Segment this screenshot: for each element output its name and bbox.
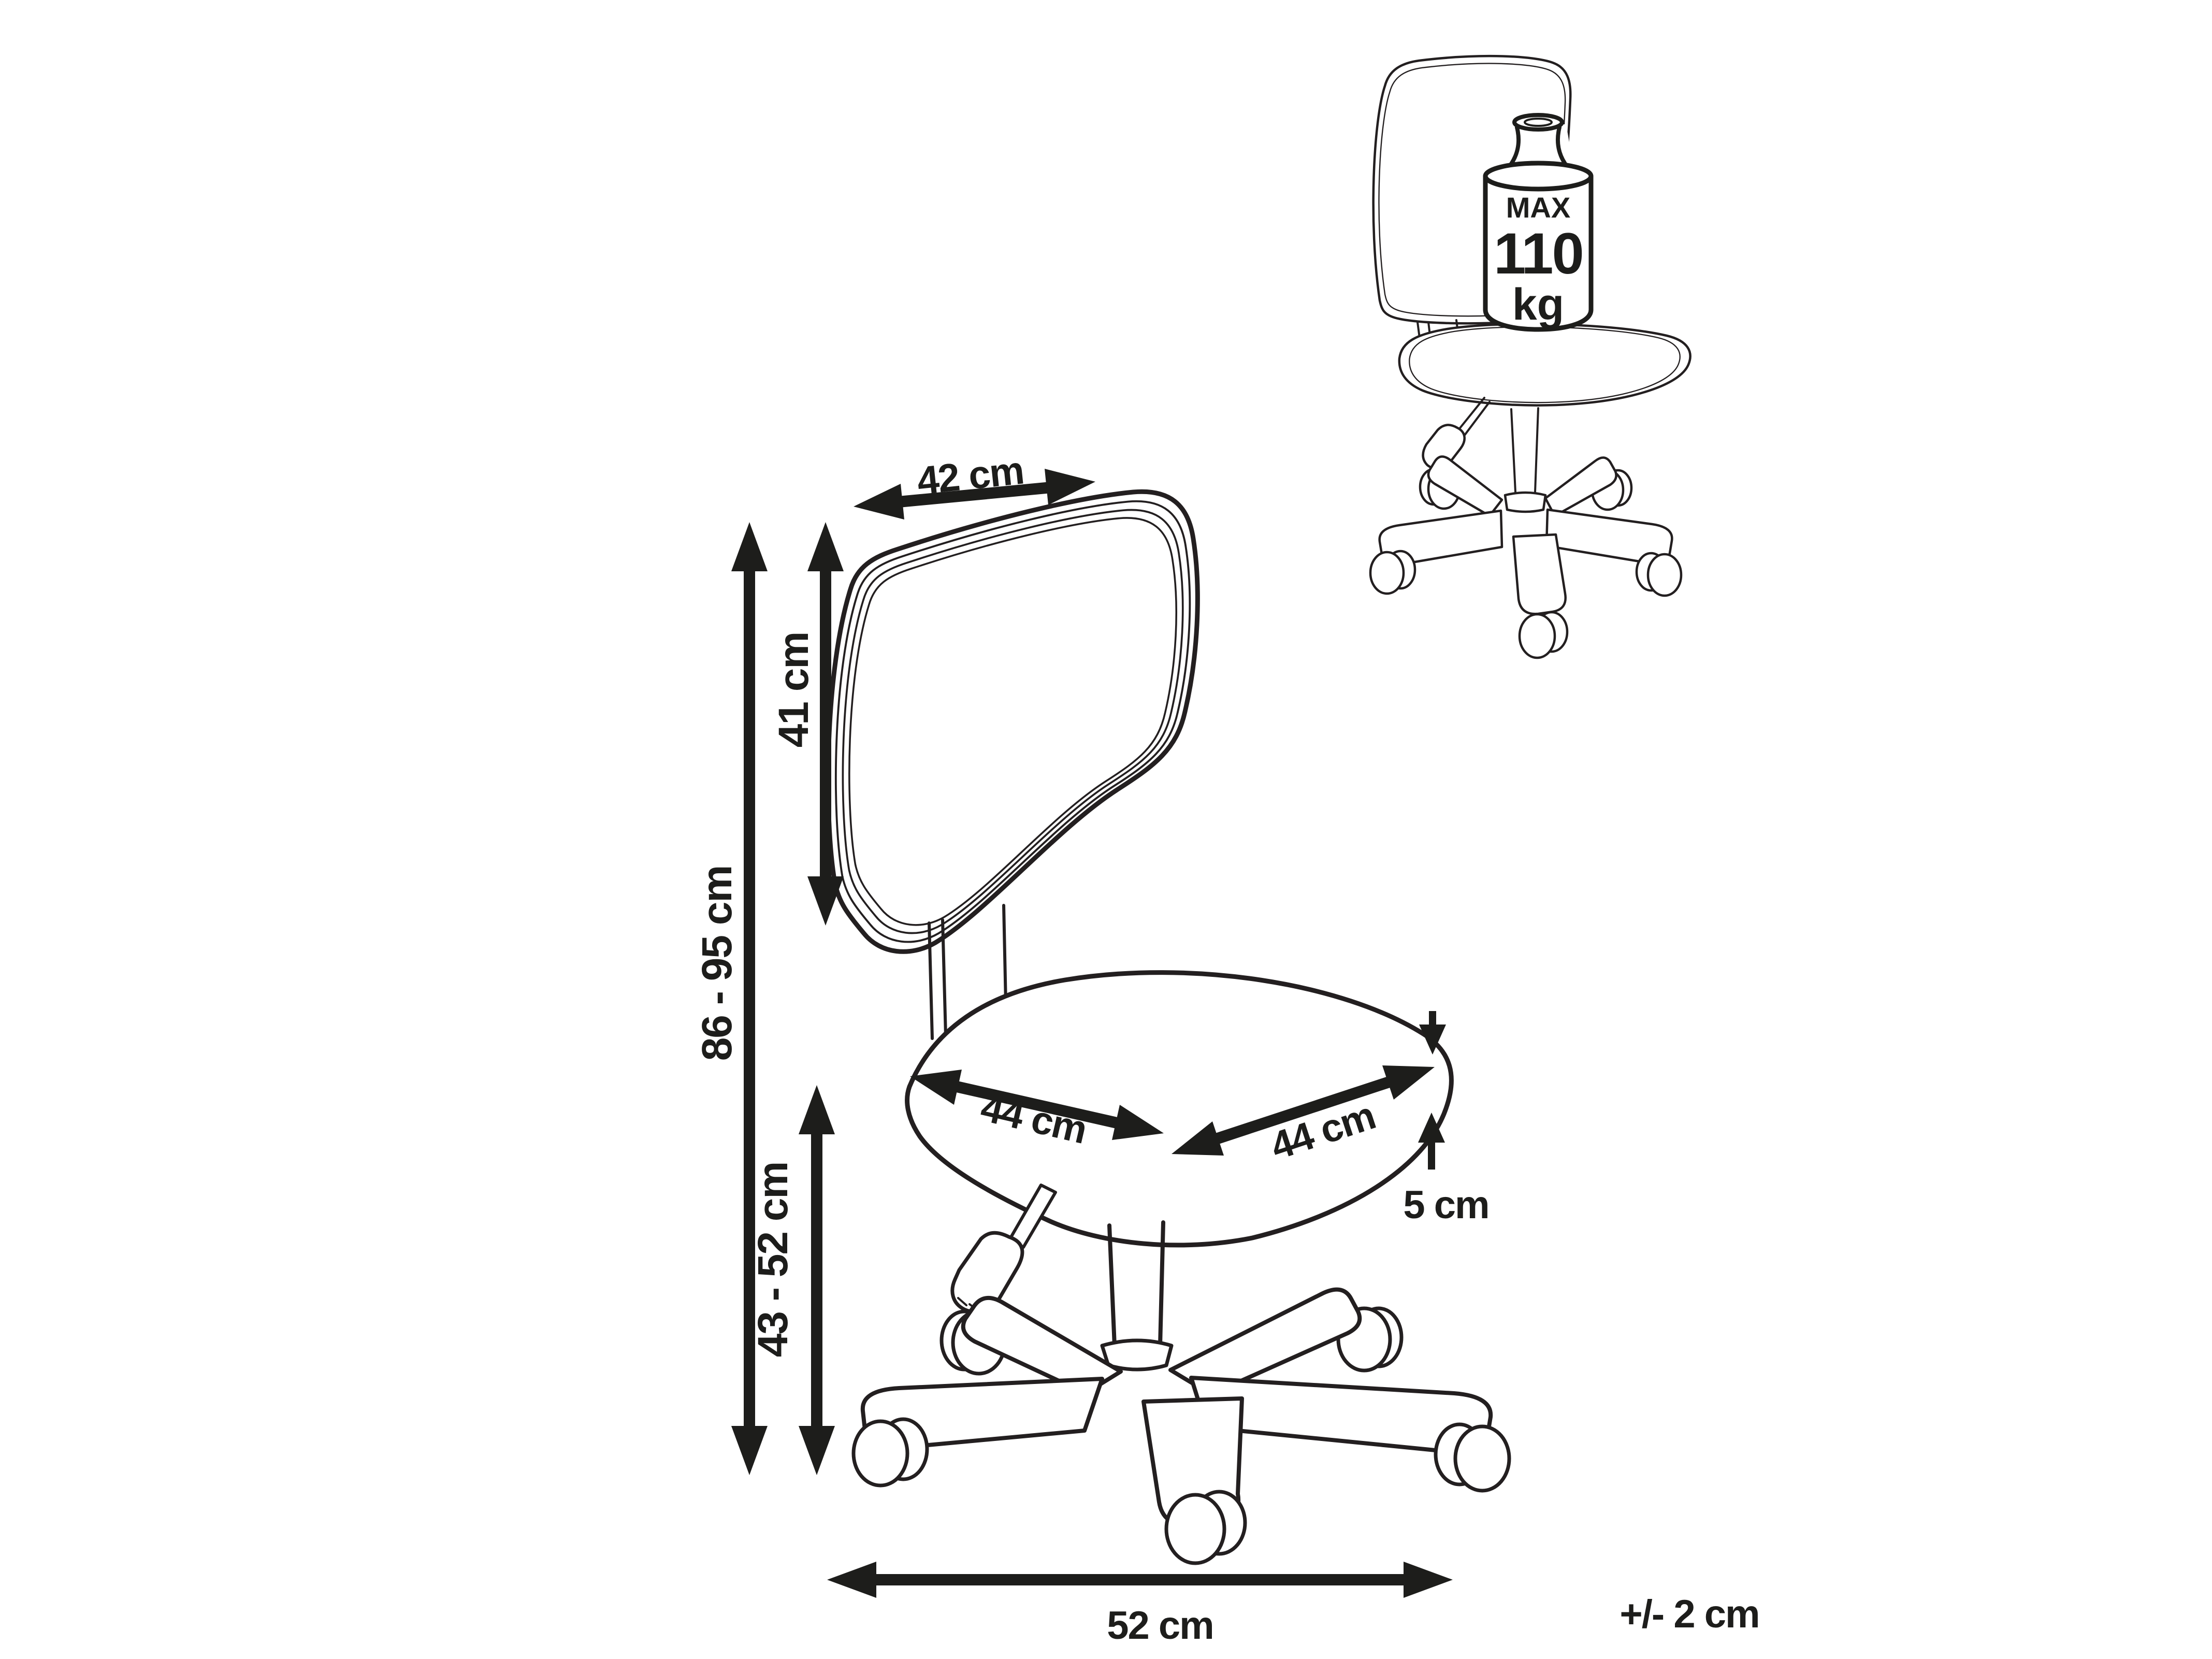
- small-hub: [1505, 493, 1545, 512]
- weight-label-110: 110: [1494, 221, 1583, 286]
- dim-seat-thickness-label: 5 cm: [1403, 1183, 1488, 1227]
- small-column: [1511, 408, 1538, 492]
- small-chair-drawing: MAX 110 kg: [1370, 56, 1690, 658]
- dim-seat-height: 43 - 52 cm: [749, 1085, 835, 1475]
- caster-right: [1436, 1424, 1509, 1491]
- dim-seat-height-label: 43 - 52 cm: [749, 1162, 797, 1358]
- dim-backrest-height-label: 41 cm: [770, 632, 817, 748]
- small-gas-lever: [1423, 398, 1490, 468]
- caster-left: [854, 1419, 927, 1485]
- gas-lift-lever: [952, 1185, 1056, 1312]
- base: [854, 1290, 1509, 1563]
- dim-base-width: 52 cm: [827, 1562, 1453, 1648]
- weight-label-kg: kg: [1512, 280, 1564, 329]
- small-caster-right: [1637, 553, 1681, 596]
- tolerance-note: +/- 2 cm: [1620, 1592, 1759, 1636]
- main-chair-drawing: [828, 492, 1509, 1563]
- small-arm-front: [1513, 535, 1566, 614]
- caster-front: [1166, 1492, 1245, 1563]
- small-caster-left: [1370, 551, 1415, 594]
- weight-label-max: MAX: [1506, 191, 1570, 224]
- dim-total-height-label: 86 - 95 cm: [693, 866, 741, 1061]
- dim-base-width-label: 52 cm: [1107, 1604, 1213, 1648]
- small-caster-front: [1520, 612, 1567, 658]
- dimension-diagram: MAX 110 kg 42 cm 41 cm 86 - 95 cm: [0, 0, 2212, 1659]
- weight-top: [1485, 163, 1591, 189]
- small-base: [1370, 456, 1681, 658]
- weight-lip: [1514, 115, 1562, 129]
- small-seat: [1399, 324, 1690, 406]
- backrest: [828, 492, 1197, 951]
